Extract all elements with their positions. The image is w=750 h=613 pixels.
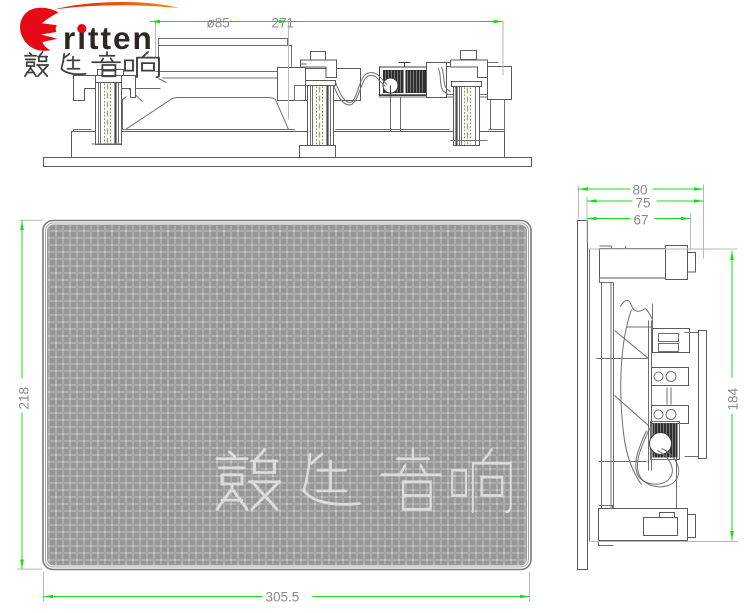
svg-text:75: 75	[636, 196, 651, 211]
svg-text:ø85: ø85	[207, 16, 230, 31]
svg-text:218: 218	[17, 387, 32, 410]
svg-text:67: 67	[634, 213, 649, 228]
svg-text:184: 184	[726, 387, 741, 410]
svg-text:305.5: 305.5	[266, 590, 300, 605]
svg-text:rıtten: rıtten	[63, 20, 154, 56]
svg-text:271: 271	[272, 16, 295, 31]
